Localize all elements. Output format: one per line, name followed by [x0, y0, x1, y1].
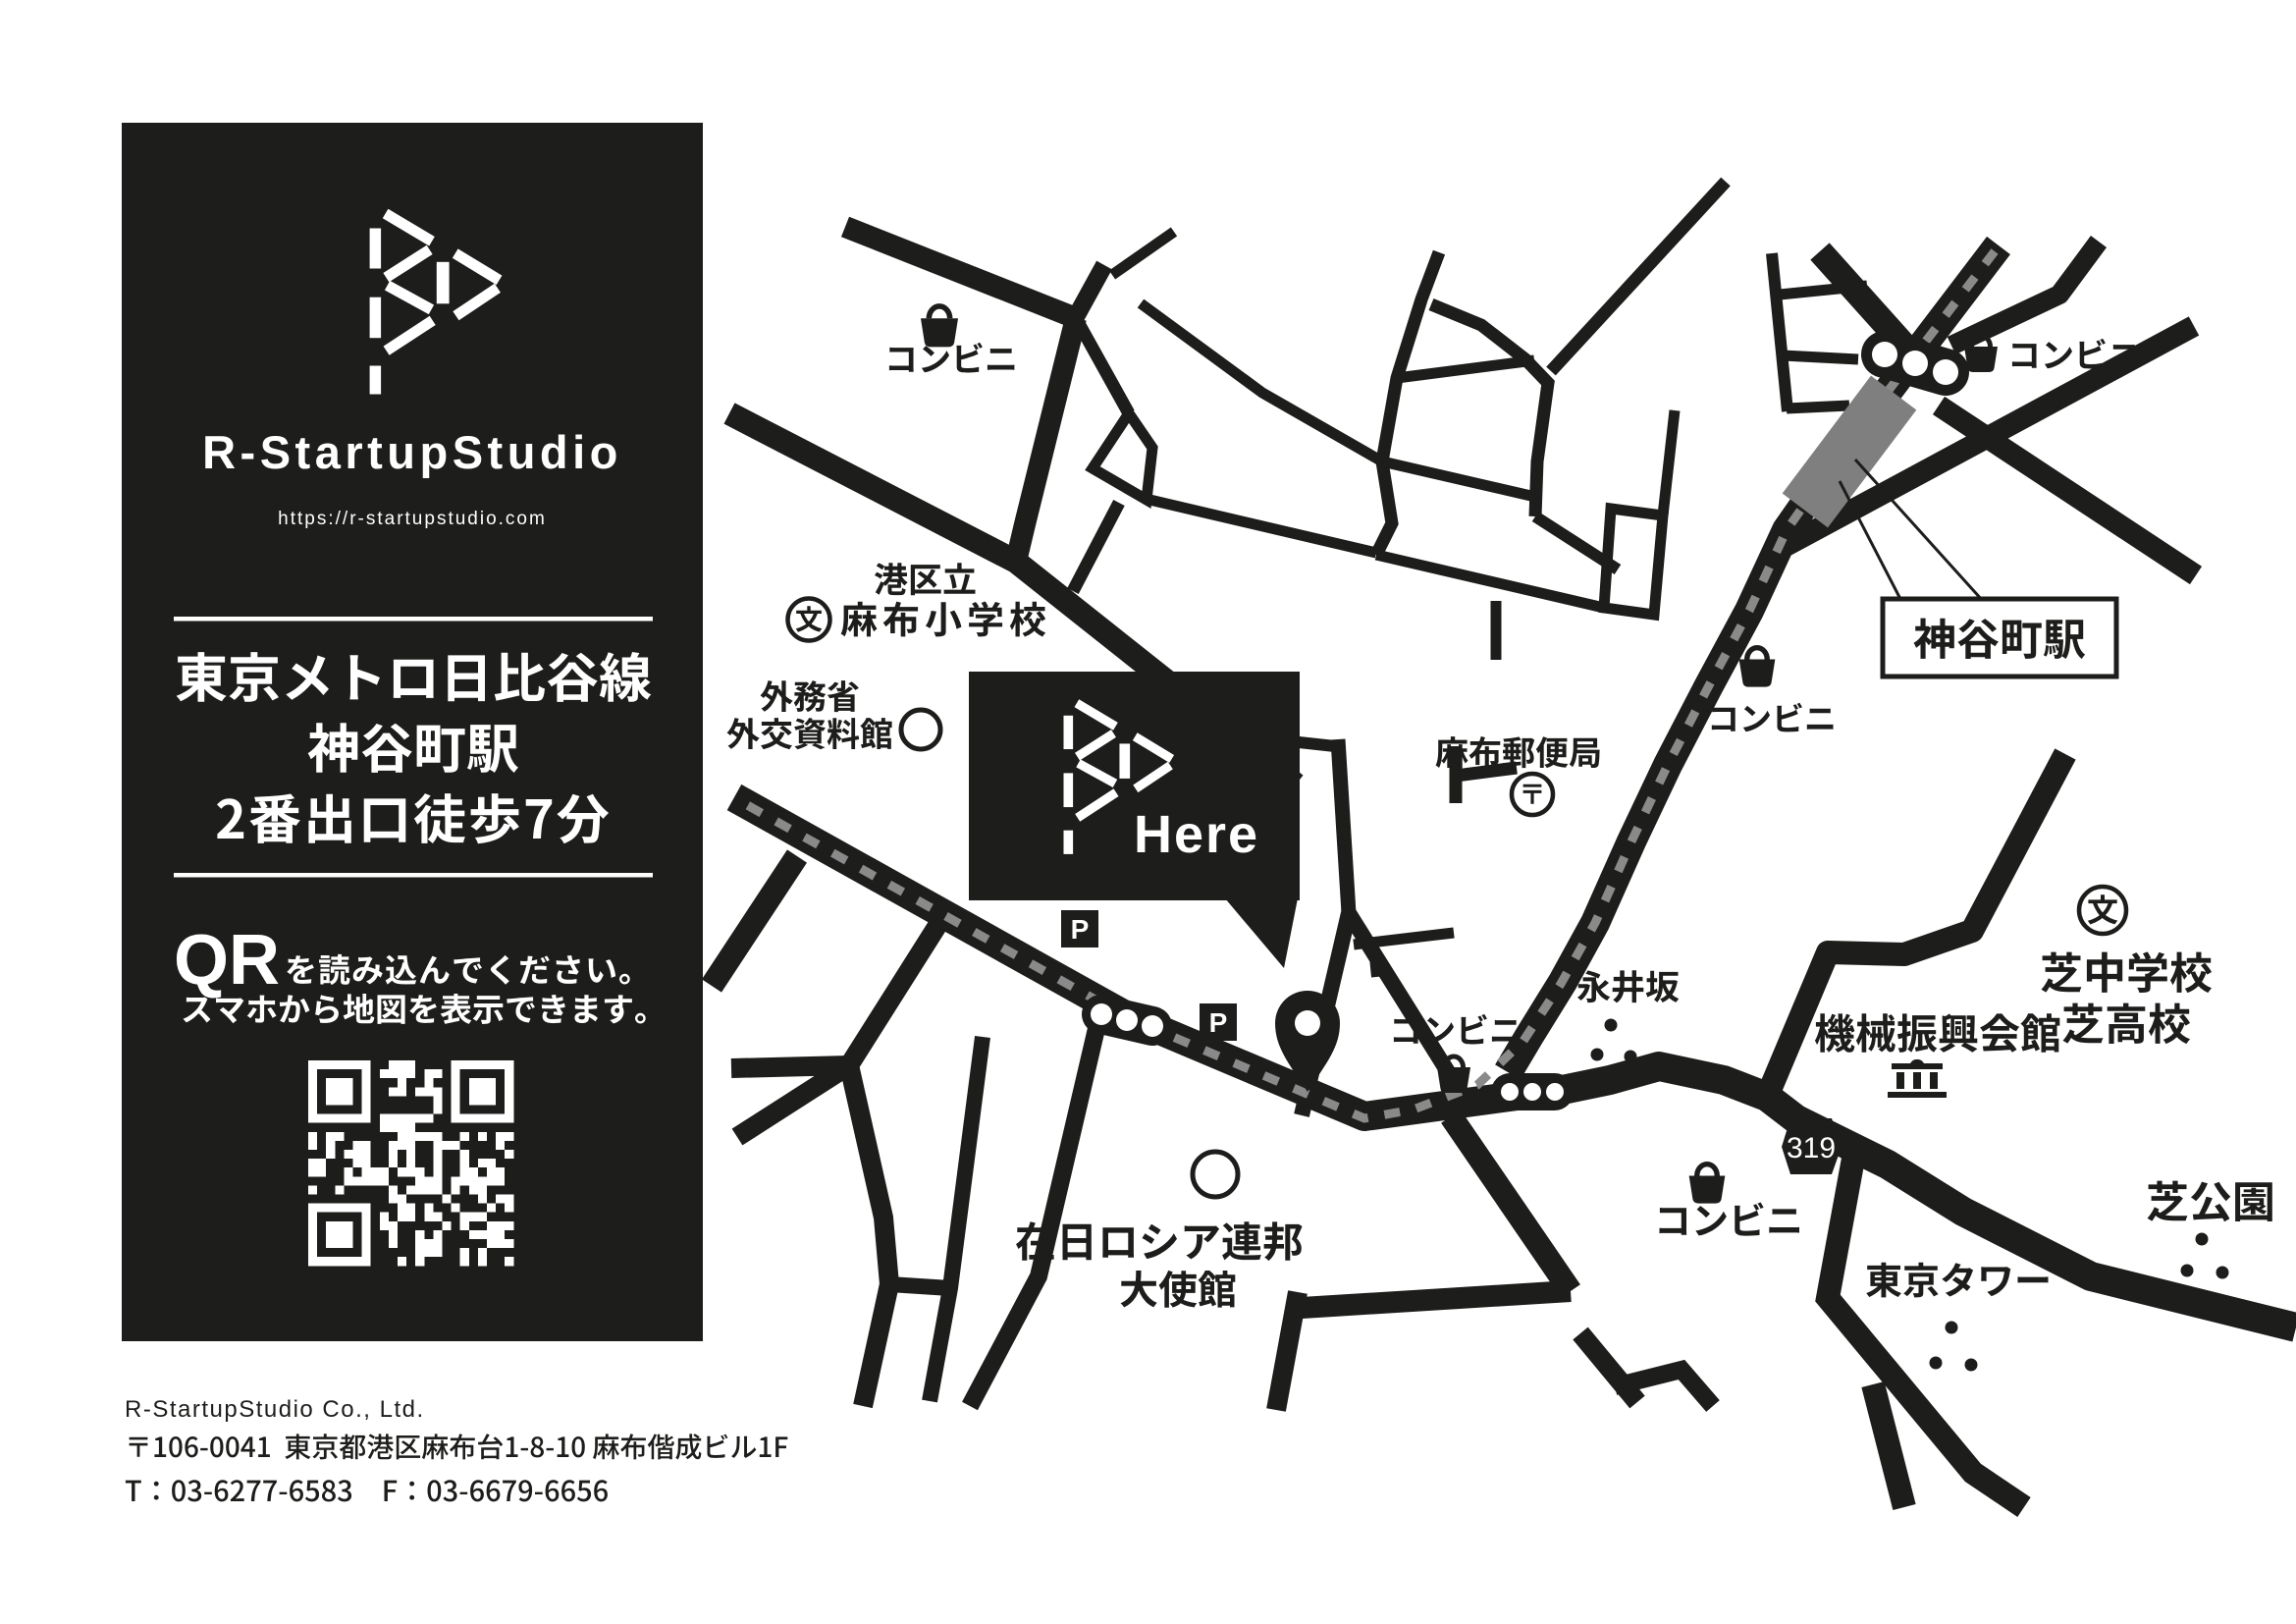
svg-text:Here: Here [1134, 805, 1259, 864]
svg-text:R-StartupStudio: R-StartupStudio [202, 426, 622, 478]
svg-text:P: P [1071, 914, 1090, 945]
svg-text:R-StartupStudio Co., Ltd.: R-StartupStudio Co., Ltd. [125, 1396, 425, 1423]
svg-text:https://r-startupstudio.com: https://r-startupstudio.com [278, 509, 547, 529]
svg-text:319: 319 [1787, 1132, 1836, 1164]
svg-text:QR: QR [174, 921, 280, 1000]
svg-text:P: P [1209, 1007, 1228, 1038]
